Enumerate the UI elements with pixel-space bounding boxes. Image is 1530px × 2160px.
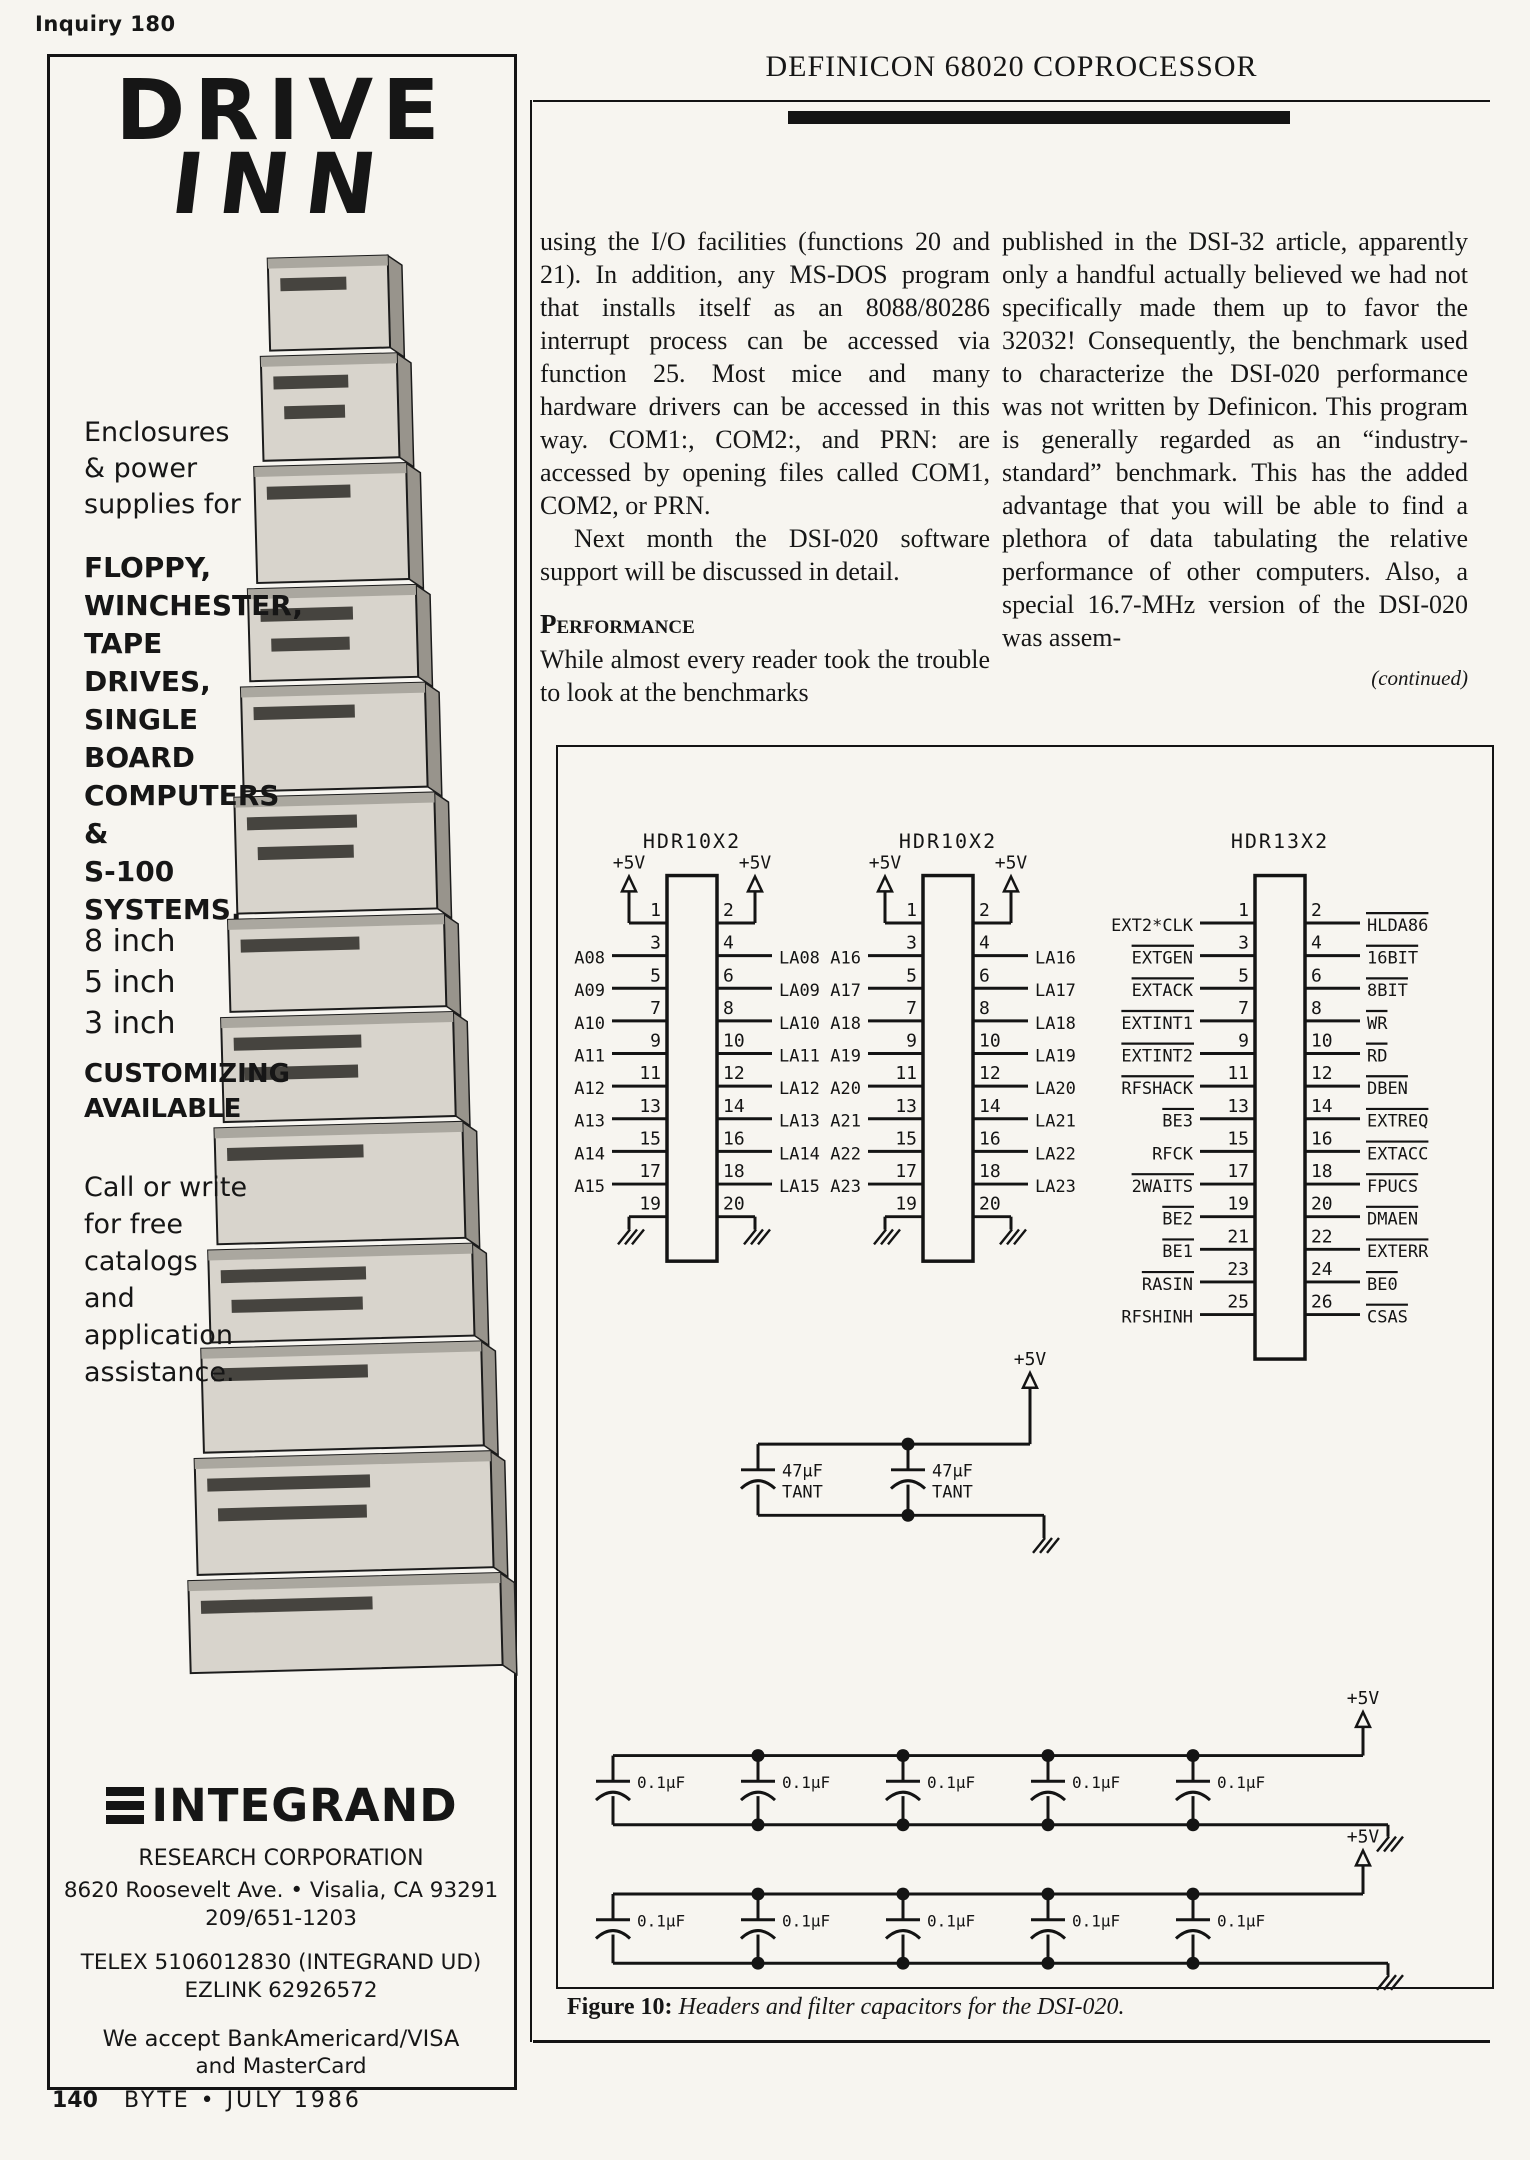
signal-label: BE2 xyxy=(1162,1209,1193,1229)
signal-label: 16BIT xyxy=(1367,948,1418,968)
pin-number: 9 xyxy=(1238,1031,1249,1052)
address-line: 8620 Roosevelt Ave. • Visalia, CA 93291 xyxy=(58,1877,504,1905)
ezlink-line: EZLINK 62926572 xyxy=(58,1977,504,2005)
pin-number: 18 xyxy=(723,1161,745,1182)
pin-number: 1 xyxy=(1238,900,1249,921)
pin-number: 2 xyxy=(1311,900,1322,921)
pin-number: 15 xyxy=(639,1129,661,1150)
pin-number: 11 xyxy=(1227,1063,1249,1084)
signal-label: LA19 xyxy=(1035,1046,1076,1066)
page-footer: 140BYTE • JULY 1986 xyxy=(52,2088,362,2113)
continued-note: (continued) xyxy=(1002,662,1468,695)
pin-number: 12 xyxy=(1311,1063,1333,1084)
signal-label: HLDA86 xyxy=(1367,915,1428,935)
pin-number: 14 xyxy=(979,1096,1001,1117)
signal-label: LA22 xyxy=(1035,1143,1076,1163)
signal-label: EXTERR xyxy=(1367,1241,1429,1261)
capacitor-value: 0.1µF xyxy=(1072,1773,1120,1792)
signal-label: EXTINT1 xyxy=(1121,1013,1193,1033)
pin-number: 5 xyxy=(1238,965,1249,986)
signal-label: LA18 xyxy=(1035,1013,1076,1033)
power-5v-label: +5V xyxy=(1014,1349,1047,1370)
signal-label: LA09 xyxy=(779,980,820,1000)
capacitor-value: 0.1µF xyxy=(637,1912,685,1931)
ad-sizes: 8 inch 5 inch 3 inch xyxy=(84,921,274,1044)
pin-number: 18 xyxy=(979,1161,1001,1182)
signal-label: EXTGEN xyxy=(1132,948,1193,968)
signal-label: A23 xyxy=(830,1176,861,1196)
figure-caption-text: Headers and filter capacitors for the DS… xyxy=(679,1994,1125,2020)
pin-number: 15 xyxy=(895,1129,917,1150)
pin-number: 3 xyxy=(1238,933,1249,954)
pin-number: 14 xyxy=(723,1096,745,1117)
ad-products: FLOPPY, WINCHESTER, TAPE DRIVES, SINGLE … xyxy=(84,549,274,929)
title-bar xyxy=(788,111,1290,124)
pin-number: 19 xyxy=(639,1194,661,1215)
pin-number: 18 xyxy=(1311,1161,1333,1182)
signal-label: EXTACK xyxy=(1132,980,1194,1000)
pin-number: 26 xyxy=(1311,1292,1333,1313)
capacitor-value: TANT xyxy=(782,1482,823,1502)
signal-label: LA13 xyxy=(779,1111,820,1131)
power-5v-label: +5V xyxy=(739,853,772,874)
pin-number: 7 xyxy=(906,998,917,1019)
capacitor-value: 0.1µF xyxy=(782,1912,830,1931)
article-title: DEFINICON 68020 COPROCESSOR xyxy=(533,50,1490,84)
pin-number: 3 xyxy=(906,933,917,954)
signal-label: A21 xyxy=(830,1111,861,1131)
paragraph: Next month the DSI-020 software support … xyxy=(540,522,990,588)
signal-label: 8BIT xyxy=(1367,980,1408,1000)
signal-label: RD xyxy=(1367,1046,1387,1066)
signal-label: A16 xyxy=(830,948,861,968)
signal-label: FPUCS xyxy=(1367,1176,1418,1196)
headers-capacitors-schematic: HDR10X212+5V+5V34A08LA0856A09LA0978A10LA… xyxy=(558,747,1488,1983)
pin-number: 2 xyxy=(723,900,734,921)
pin-number: 7 xyxy=(1238,998,1249,1019)
signal-label: LA12 xyxy=(779,1078,820,1098)
pin-number: 16 xyxy=(723,1129,745,1150)
signal-label: DBEN xyxy=(1367,1078,1408,1098)
signal-label: BE3 xyxy=(1162,1111,1193,1131)
figure-caption: Figure 10: Headers and filter capacitors… xyxy=(567,1994,1487,2021)
signal-label: A09 xyxy=(574,980,605,1000)
signal-label: LA15 xyxy=(779,1176,820,1196)
title-rule xyxy=(533,100,1490,102)
pin-number: 8 xyxy=(723,998,734,1019)
signal-label: A18 xyxy=(830,1013,861,1033)
page-number: 140 xyxy=(52,2088,98,2113)
telex-line: TELEX 5106012830 (INTEGRAND UD) xyxy=(58,1949,504,1977)
signal-label: EXTINT2 xyxy=(1121,1046,1193,1066)
logo-line-2: INN xyxy=(45,145,519,225)
article-column-2: published in the DSI-32 article, apparen… xyxy=(1002,225,1468,695)
division-name: RESEARCH CORPORATION xyxy=(58,1845,504,1873)
signal-label: A13 xyxy=(574,1111,605,1131)
accept-line-1: We accept BankAmericard/VISA xyxy=(58,2025,504,2053)
signal-label: LA11 xyxy=(779,1046,820,1066)
drive-inn-logo: DRIVE INN xyxy=(50,71,514,225)
pin-number: 13 xyxy=(1227,1096,1249,1117)
signal-label: WR xyxy=(1367,1013,1388,1033)
capacitor-value: TANT xyxy=(932,1482,973,1502)
signal-label: 2WAITS xyxy=(1132,1176,1193,1196)
signal-label: LA14 xyxy=(779,1143,820,1163)
capacitor-value: 0.1µF xyxy=(1072,1912,1120,1931)
signal-label: LA17 xyxy=(1035,980,1076,1000)
signal-label: BE0 xyxy=(1367,1274,1398,1294)
pin-number: 19 xyxy=(895,1194,917,1215)
pin-number: 6 xyxy=(1311,965,1322,986)
header-name: HDR10X2 xyxy=(899,830,997,853)
capacitor-value: 47µF xyxy=(932,1461,973,1481)
signal-label: A19 xyxy=(830,1046,861,1066)
pin-number: 4 xyxy=(979,933,990,954)
signal-label: RFCK xyxy=(1152,1143,1194,1163)
power-5v-label: +5V xyxy=(1347,1827,1380,1848)
signal-label: RFSHINH xyxy=(1121,1307,1193,1327)
pin-number: 13 xyxy=(639,1096,661,1117)
pin-number: 10 xyxy=(723,1031,745,1052)
signal-label: A10 xyxy=(574,1013,605,1033)
pin-number: 14 xyxy=(1311,1096,1333,1117)
accept-line-2: and MasterCard xyxy=(58,2053,504,2081)
ad-intro-text: Enclosures & power supplies for xyxy=(84,415,274,523)
signal-label: LA08 xyxy=(779,948,820,968)
capacitor-value: 0.1µF xyxy=(637,1773,685,1792)
pin-number: 9 xyxy=(906,1031,917,1052)
ad-customizing: CUSTOMIZING AVAILABLE xyxy=(84,1057,274,1127)
footer-text: BYTE • JULY 1986 xyxy=(124,2088,362,2113)
bottom-rule xyxy=(533,2040,1490,2043)
capacitor-value: 0.1µF xyxy=(1217,1773,1265,1792)
signal-label: EXT2*CLK xyxy=(1111,915,1194,935)
integrand-bars-icon xyxy=(106,1782,144,1829)
signal-label: A20 xyxy=(830,1078,861,1098)
drive-inn-ad: DRIVE INN Enclosures & power supplies fo… xyxy=(47,54,517,2090)
pin-number: 6 xyxy=(723,965,734,986)
magazine-page: Inquiry 180 DRIVE INN Enclosures & power… xyxy=(0,0,1530,2160)
pin-number: 12 xyxy=(723,1063,745,1084)
pin-number: 10 xyxy=(1311,1031,1333,1052)
signal-label: EXTACC xyxy=(1367,1143,1428,1163)
ad-call-text: Call or write for free catalogs and appl… xyxy=(84,1169,274,1391)
figure-10-box: HDR10X212+5V+5V34A08LA0856A09LA0978A10LA… xyxy=(556,745,1494,1989)
pin-number: 9 xyxy=(650,1031,661,1052)
signal-label: RASIN xyxy=(1142,1274,1193,1294)
paragraph: published in the DSI-32 article, apparen… xyxy=(1002,225,1468,654)
pin-number: 1 xyxy=(906,900,917,921)
pin-number: 1 xyxy=(650,900,661,921)
pin-number: 17 xyxy=(895,1161,917,1182)
signal-label: DMAEN xyxy=(1367,1209,1418,1229)
pin-number: 23 xyxy=(1227,1259,1249,1280)
signal-label: A14 xyxy=(574,1143,605,1163)
signal-label: A17 xyxy=(830,980,861,1000)
pin-number: 16 xyxy=(1311,1129,1333,1150)
pin-number: 6 xyxy=(979,965,990,986)
signal-label: LA23 xyxy=(1035,1176,1076,1196)
pin-number: 5 xyxy=(906,965,917,986)
signal-label: A15 xyxy=(574,1176,605,1196)
header-name: HDR13X2 xyxy=(1231,830,1329,853)
signal-label: BE1 xyxy=(1162,1241,1193,1261)
ad-contact-block: RESEARCH CORPORATION 8620 Roosevelt Ave.… xyxy=(58,1845,504,2081)
article-column-1: using the I/O facilities (functions 20 a… xyxy=(540,225,990,709)
pin-number: 7 xyxy=(650,998,661,1019)
pin-number: 17 xyxy=(1227,1161,1249,1182)
pin-number: 20 xyxy=(979,1194,1001,1215)
signal-label: EXTREQ xyxy=(1367,1111,1428,1131)
signal-label: LA20 xyxy=(1035,1078,1076,1098)
pin-number: 21 xyxy=(1227,1226,1249,1247)
pin-number: 17 xyxy=(639,1161,661,1182)
paragraph: While almost every reader took the troub… xyxy=(540,643,990,709)
pin-number: 20 xyxy=(723,1194,745,1215)
pin-number: 4 xyxy=(723,933,734,954)
signal-label: RFSHACK xyxy=(1121,1078,1193,1098)
signal-label: LA10 xyxy=(779,1013,820,1033)
pin-number: 2 xyxy=(979,900,990,921)
pin-number: 15 xyxy=(1227,1129,1249,1150)
pin-number: 11 xyxy=(639,1063,661,1084)
pin-number: 4 xyxy=(1311,933,1322,954)
power-5v-label: +5V xyxy=(613,853,646,874)
pin-number: 13 xyxy=(895,1096,917,1117)
figure-caption-label: Figure 10: xyxy=(567,1994,673,2020)
signal-label: A08 xyxy=(574,948,605,968)
pin-number: 3 xyxy=(650,933,661,954)
pin-number: 16 xyxy=(979,1129,1001,1150)
signal-label: LA21 xyxy=(1035,1111,1076,1131)
inquiry-number: Inquiry 180 xyxy=(35,12,176,36)
signal-label: CSAS xyxy=(1367,1307,1408,1327)
paragraph: using the I/O facilities (functions 20 a… xyxy=(540,225,990,522)
pin-number: 10 xyxy=(979,1031,1001,1052)
capacitor-value: 0.1µF xyxy=(1217,1912,1265,1931)
capacitor-value: 0.1µF xyxy=(927,1912,975,1931)
power-5v-label: +5V xyxy=(1347,1688,1380,1709)
pin-number: 19 xyxy=(1227,1194,1249,1215)
power-5v-label: +5V xyxy=(869,853,902,874)
capacitor-value: 0.1µF xyxy=(782,1773,830,1792)
signal-label: A22 xyxy=(830,1143,861,1163)
pin-number: 24 xyxy=(1311,1259,1333,1280)
pin-number: 12 xyxy=(979,1063,1001,1084)
capacitor-value: 47µF xyxy=(782,1461,823,1481)
pin-number: 20 xyxy=(1311,1194,1333,1215)
capacitor-value: 0.1µF xyxy=(927,1773,975,1792)
pin-number: 8 xyxy=(979,998,990,1019)
section-heading: Performance xyxy=(540,608,990,641)
power-5v-label: +5V xyxy=(995,853,1028,874)
pin-number: 8 xyxy=(1311,998,1322,1019)
header-name: HDR10X2 xyxy=(643,830,741,853)
signal-label: A12 xyxy=(574,1078,605,1098)
pin-number: 25 xyxy=(1227,1292,1249,1313)
phone-line: 209/651-1203 xyxy=(58,1905,504,1933)
pin-number: 22 xyxy=(1311,1226,1333,1247)
signal-label: LA16 xyxy=(1035,948,1076,968)
pin-number: 11 xyxy=(895,1063,917,1084)
pin-number: 5 xyxy=(650,965,661,986)
signal-label: A11 xyxy=(574,1046,605,1066)
